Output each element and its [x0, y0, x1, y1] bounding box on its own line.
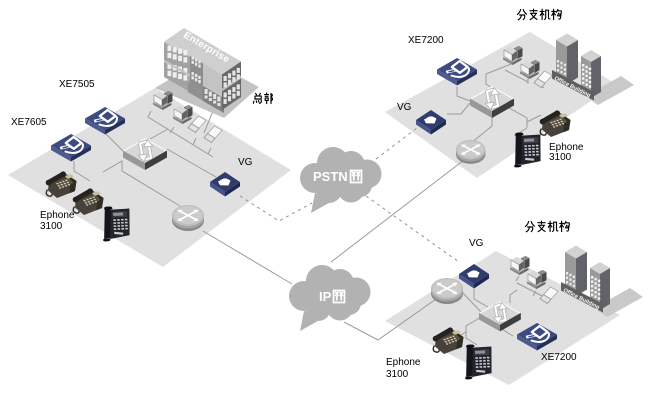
svg-text:3100: 3100: [386, 369, 409, 380]
svg-text:PSTN: PSTN: [313, 169, 348, 184]
svg-text:XE7200: XE7200: [541, 352, 577, 363]
svg-text:Ephone: Ephone: [386, 357, 421, 368]
svg-text:XE7200: XE7200: [408, 35, 444, 46]
svg-text:3100: 3100: [549, 152, 572, 163]
svg-text:Ephone: Ephone: [40, 210, 75, 221]
svg-text:IP: IP: [319, 289, 332, 304]
svg-text:VG: VG: [238, 157, 253, 168]
svg-text:3100: 3100: [40, 221, 63, 232]
svg-text:VG: VG: [397, 102, 412, 113]
svg-text:XE7605: XE7605: [11, 117, 47, 128]
svg-text:VG: VG: [469, 238, 484, 249]
svg-text:XE7505: XE7505: [59, 79, 95, 90]
